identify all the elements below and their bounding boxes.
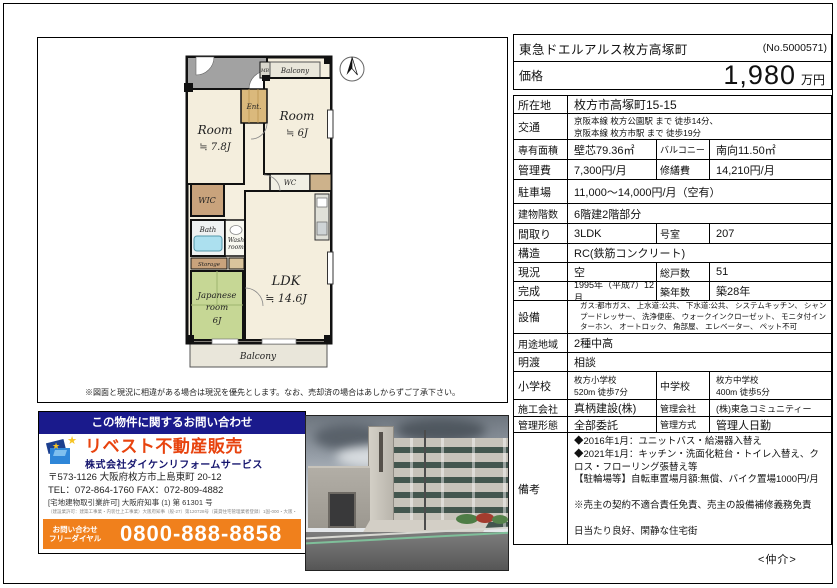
row-value2: (株)東急コミュニティー <box>710 400 831 416</box>
table-row-status: 現況 空 総戸数 51 <box>514 263 831 282</box>
row-label: 明渡 <box>514 353 568 371</box>
sink-icon <box>230 226 242 235</box>
inquiry-header: この物件に関するお問い合わせ <box>39 412 305 434</box>
row-label2: 管理方式 <box>657 417 710 432</box>
remark-line <box>574 513 827 526</box>
elementary-name: 枚方小学校 <box>574 374 617 386</box>
room-6j <box>264 78 331 174</box>
star-icon: ★ <box>52 442 60 451</box>
phone-label: お問い合わせ フリーダイヤル <box>49 525 101 543</box>
row-label: 建物階数 <box>514 204 568 223</box>
remark-line: ◆2016年1月：ユニットバス・給湯器入替え <box>574 436 827 449</box>
flyer-page: Balcony MB Balcony Room ≒ 6J WC Room ≒ 7… <box>0 0 837 588</box>
shrub <box>492 515 508 524</box>
row-label: 間取り <box>514 224 568 243</box>
kitchen-sink <box>317 198 327 207</box>
table-row-mgmt-fee: 管理費 7,300円/月 修繕費 14,210円/月 <box>514 160 831 180</box>
balcony-top-label: Balcony <box>280 67 310 75</box>
row-label: 施工会社 <box>514 400 568 416</box>
entrance-door <box>328 492 356 528</box>
table-row-parking: 駐車場 11,000～14,000円/月（空有） <box>514 180 831 204</box>
row-label: 交通 <box>514 114 568 139</box>
star-icon: ★ <box>67 437 77 446</box>
building-photo <box>305 415 509 571</box>
remark-line: ◆2021年1月：キッチン・洗面化粧台・トイレ入替え、クロス・フローリング張替え… <box>574 449 827 474</box>
row-label: 管理形態 <box>514 417 568 432</box>
pillar <box>262 75 270 81</box>
row-value: 相談 <box>568 353 831 371</box>
remarks-text: ◆2016年1月：ユニットバス・給湯器入替え ◆2021年1月：キッチン・洗面化… <box>568 433 831 544</box>
row-label2: 号室 <box>657 224 710 243</box>
row-label2: バルコニー <box>657 140 710 159</box>
remark-line <box>574 487 827 500</box>
title-price-table: 東急ドエルアルス枚方高塚町 (No.5000571) 価格 1,980 万円 <box>513 34 832 90</box>
row-label2: 管理会社 <box>657 400 710 416</box>
table-row-transit: 交通 京阪本線 枚方公園駅 まで 徒歩14分、 京阪本線 枚方市駅 まで 徒歩1… <box>514 114 831 140</box>
transit-line2: 京阪本線 枚方市駅 まで 徒歩19分 <box>574 127 701 139</box>
row-label: 駐車場 <box>514 180 568 203</box>
pillar <box>184 83 193 92</box>
remark-line: 【駐輪場等】自転車置場月額:無償、バイク置場1000円/月 <box>574 474 827 487</box>
row-value: 1995年（平成7）12月 <box>568 282 657 300</box>
remark-line: ※売主の契約不適合責任免責、売主の設備補修義務免責 <box>574 500 827 513</box>
junior-high-distance: 400m 徒歩5分 <box>716 386 770 398</box>
table-row-schools: 小学校 枚方小学校 520m 徒歩7分 中学校 枚方中学校 400m 徒歩5分 <box>514 372 831 400</box>
table-row-zoning: 用途地域 2種中高 <box>514 334 831 353</box>
room-6j-size: ≒ 6J <box>286 128 309 139</box>
floorplan-drawing: Balcony MB Balcony Room ≒ 6J WC Room ≒ 7… <box>184 52 334 374</box>
table-row-area: 専有面積 壁芯79.36㎡ バルコニー 南向11.50㎡ <box>514 140 831 160</box>
row-value2: 築28年 <box>710 282 831 300</box>
price-value: 1,980 <box>723 62 796 89</box>
row-label: 専有面積 <box>514 140 568 159</box>
row-value: 3LDK <box>568 224 657 243</box>
ldk-size: ≒ 14.6J <box>265 292 307 305</box>
row-value: 全部委託 <box>568 417 657 432</box>
table-row-remarks: 備考 ◆2016年1月：ユニットバス・給湯器入替え ◆2021年1月：キッチン・… <box>514 433 831 544</box>
junior-high-name: 枚方中学校 <box>716 374 759 386</box>
agency-logo-icon: ★ ★ <box>47 439 79 469</box>
price-unit: 万円 <box>801 71 825 88</box>
table-row-mgmt-type: 管理形態 全部委託 管理方式 管理人日勤 <box>514 417 831 433</box>
balcony-bottom-label: Balcony <box>239 352 277 362</box>
row-value: 6階建2階部分 <box>568 204 831 223</box>
row-value2: 管理人日勤 <box>710 417 831 432</box>
phone-label-line2: フリーダイヤル <box>49 534 101 543</box>
mb-label: MB <box>260 68 270 74</box>
listing-number: (No.5000571) <box>763 42 831 54</box>
bath-label: Bath <box>199 226 217 234</box>
pillar <box>324 335 332 343</box>
pillar <box>186 335 194 343</box>
closet <box>310 174 331 191</box>
elementary-distance: 520m 徒歩7分 <box>574 386 628 398</box>
agency-brand-name: リベスト不動産販売 <box>85 437 263 456</box>
table-row-facilities: 設備 ガス:都市ガス、 上水道:公共、 下水道:公共、 システムキッチン、 シャ… <box>514 301 831 334</box>
agency-name-block: リベスト不動産販売 株式会社ダイケンリフォームサービス <box>85 437 263 471</box>
row-label: 管理費 <box>514 160 568 179</box>
row-value: 11,000～14,000円/月（空有） <box>568 180 831 203</box>
wash-label-2: room <box>228 244 244 251</box>
phone-number: 0800-888-8858 <box>107 521 295 547</box>
pillar <box>324 56 332 64</box>
utility-pole <box>424 430 426 530</box>
table-row-location: 所在地 枚方市高塚町15-15 <box>514 96 831 114</box>
room-7-8j-label: Room <box>197 123 233 137</box>
closet <box>229 258 244 269</box>
phone-label-line1: お問い合わせ <box>49 525 101 534</box>
row-label2: 修繕費 <box>657 160 710 179</box>
wash-label-1: Wash <box>228 237 244 244</box>
window <box>212 339 238 344</box>
shrub <box>456 514 478 524</box>
table-row-structure: 構造 RC(鉄筋コンクリート) <box>514 244 831 263</box>
row-label2: 中学校 <box>657 372 710 399</box>
wic-label: WIC <box>198 196 216 205</box>
window <box>328 252 334 284</box>
table-row-layout: 間取り 3LDK 号室 207 <box>514 224 831 244</box>
phone-bar: お問い合わせ フリーダイヤル 0800-888-8858 <box>43 519 301 549</box>
wc-label: WC <box>284 179 297 187</box>
agency-logo-row: ★ ★ リベスト不動産販売 株式会社ダイケンリフォームサービス <box>39 434 305 471</box>
row-value: RC(鉄筋コンクリート) <box>568 244 831 262</box>
row-label: 現況 <box>514 263 568 281</box>
row-label2: 総戸数 <box>657 263 710 281</box>
row-value2: 51 <box>710 263 831 281</box>
facilities-text: ガス:都市ガス、 上水道:公共、 下水道:公共、 システムキッチン、 シャンプー… <box>574 301 831 333</box>
row-value: 真柄建設(株) <box>568 400 657 416</box>
row-value: 2種中高 <box>568 334 831 352</box>
row-value: 枚方市高塚町15-15 <box>568 96 831 113</box>
storage-label: Storage <box>198 262 221 268</box>
floorplan-disclaimer: ※図面と現況に相違がある場合は現況を優先とします。なお、売却済の場合はあしからず… <box>38 387 507 398</box>
agency-company-name: 株式会社ダイケンリフォームサービス <box>85 456 263 471</box>
floorplan-panel: Balcony MB Balcony Room ≒ 6J WC Room ≒ 7… <box>37 37 508 403</box>
kitchen-stove <box>317 222 327 235</box>
table-row-builder: 施工会社 真柄建設(株) 管理会社 (株)東急コミュニティー <box>514 400 831 417</box>
table-row-floors: 建物階数 6階建2階部分 <box>514 204 831 224</box>
broker-type-label: <仲介> <box>758 551 797 567</box>
tower-window <box>379 432 383 472</box>
japanese-room-label-3: 6J <box>213 316 222 326</box>
table-row-handover: 明渡 相談 <box>514 353 831 372</box>
compass-icon <box>337 54 367 84</box>
row-value: 7,300円/月 <box>568 160 657 179</box>
property-detail-table: 所在地 枚方市高塚町15-15 交通 京阪本線 枚方公園駅 まで 徒歩14分、 … <box>513 95 832 545</box>
room-6j-label: Room <box>279 109 315 123</box>
row-label: 設備 <box>514 301 568 333</box>
window <box>328 110 334 138</box>
ldk-label: LDK <box>271 274 302 289</box>
row-value: 空 <box>568 263 657 281</box>
row-value2: 14,210円/月 <box>710 160 831 179</box>
row-label: 備考 <box>514 433 568 544</box>
row-label: 完成 <box>514 282 568 300</box>
row-value2: 207 <box>710 224 831 243</box>
table-row-built: 完成 1995年（平成7）12月 築年数 築28年 <box>514 282 831 301</box>
agency-address: 〒573-1126 大阪府枚方市上島東町 20-12 <box>39 471 305 484</box>
title-row: 東急ドエルアルス枚方高塚町 (No.5000571) <box>514 35 831 62</box>
japanese-room-label-1: Japanese <box>196 291 237 301</box>
row-label: 用途地域 <box>514 334 568 352</box>
japanese-room-label-2: room <box>206 303 228 313</box>
property-title: 東急ドエルアルス枚方高塚町 <box>514 39 688 58</box>
agency-contact-panel: この物件に関するお問い合わせ ★ ★ リベスト不動産販売 株式会社ダイケンリフォ… <box>38 411 306 554</box>
agency-tel-fax: TEL：072-864-1760 FAX：072-809-4882 <box>39 484 305 497</box>
entrance-label: Ent. <box>246 103 262 111</box>
agency-license-small: （建設業許可：建築工事業・内装仕上工事業）大阪府知事（般-27）第120728号… <box>39 508 297 515</box>
price-label: 価格 <box>514 67 543 84</box>
row-label: 所在地 <box>514 96 568 113</box>
row-value2: 南向11.50㎡ <box>710 140 831 159</box>
row-label: 小学校 <box>514 372 568 399</box>
room-7-8j-size: ≒ 7.8J <box>199 142 231 153</box>
row-label2: 築年数 <box>657 282 710 300</box>
remark-line: 日当たり良好、閑静な住宅街 <box>574 526 827 539</box>
agency-license: [宅地建物取引業許可] 大阪府知事 (1) 第 61301 号 <box>39 498 305 508</box>
transit-line1: 京阪本線 枚方公園駅 まで 徒歩14分、 <box>574 115 718 127</box>
bathtub <box>194 236 222 251</box>
row-value: 壁芯79.36㎡ <box>568 140 657 159</box>
price-row: 価格 1,980 万円 <box>514 62 831 89</box>
row-label: 構造 <box>514 244 568 262</box>
window <box>262 339 296 344</box>
